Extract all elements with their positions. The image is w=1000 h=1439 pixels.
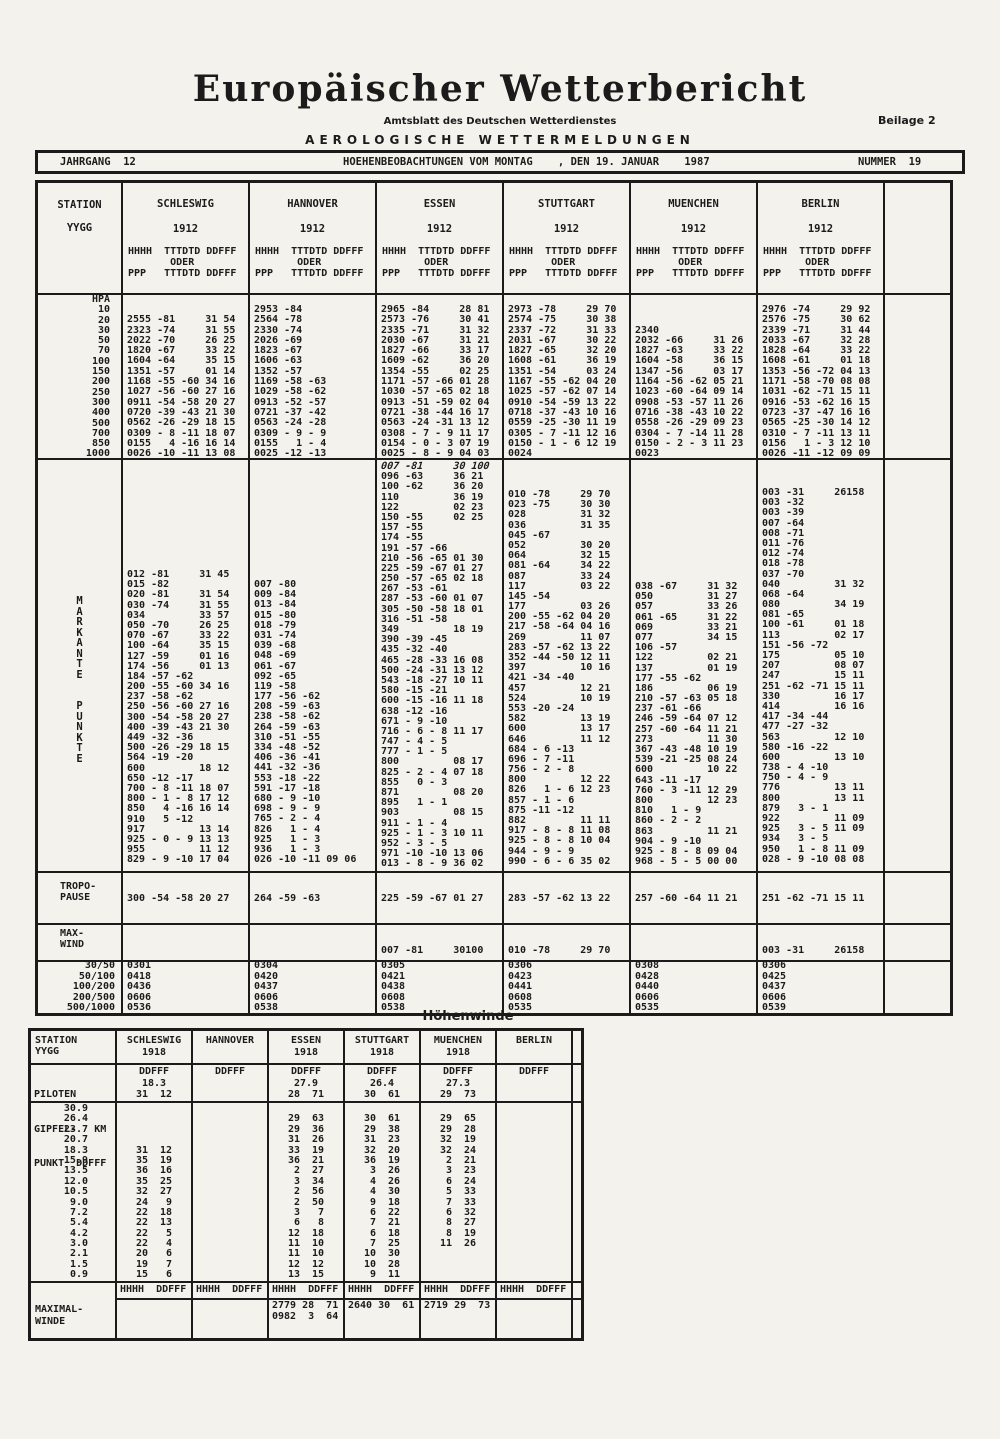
table-divider <box>31 1281 581 1283</box>
column-header-line: HHHH TTTDTD DDFFF <box>382 246 502 257</box>
document-subtitle: Amtsblatt des Deutschen Wetterdienstes <box>0 116 1000 127</box>
height-wind-line <box>193 1187 267 1197</box>
height-wind-line <box>497 1249 571 1259</box>
piloten-ddfff-label: DDFFF <box>193 1066 267 1078</box>
hw-station-yygg <box>193 1046 267 1047</box>
height-wind-line <box>193 1156 267 1166</box>
hw-station-column-hannover: HANNOVERDDFFFHHHH DDFFF <box>193 1031 269 1338</box>
hpa-data-cell: 2976 -74 29 922576 -75 30 622339 -71 31 … <box>758 293 883 458</box>
gipfel-km-value: 27.3 <box>421 1078 495 1090</box>
shear-data-line: 0305 <box>377 961 502 972</box>
height-wind-line <box>193 1249 267 1259</box>
piloten-data-cell: DDFFF27.329 73 <box>421 1063 495 1101</box>
table-divider <box>38 293 950 295</box>
height-wind-line <box>117 1104 191 1114</box>
table-divider <box>38 923 950 925</box>
height-wind-line: 4 30 <box>345 1187 419 1197</box>
markante-data-line: 600 13 17 <box>504 724 629 734</box>
hw-station-yygg: 1918 <box>345 1046 419 1058</box>
height-km-value: 0.9 <box>31 1270 88 1280</box>
markante-data-line: 026 -10 -11 09 06 <box>250 855 375 865</box>
markante-data-line: 990 - 6 - 6 35 02 <box>504 857 629 867</box>
tropopause-data-line: 257 -60 -64 11 21 <box>635 893 756 904</box>
height-wind-line <box>497 1208 571 1218</box>
maxwind-data-cell <box>123 923 248 960</box>
height-wind-line: 31 26 <box>269 1135 343 1145</box>
height-wind-line <box>193 1125 267 1135</box>
hw-station-name: BERLIN <box>497 1031 571 1046</box>
height-wind-line <box>117 1135 191 1145</box>
height-wind-line <box>497 1156 571 1166</box>
markante-letter: M <box>38 596 121 607</box>
markante-data-line: 048 -69 <box>250 651 375 661</box>
height-wind-line <box>497 1198 571 1208</box>
column-header: HHHH TTTDTD DDFFF ODERPPP TTTDTD DDFFF <box>631 235 756 279</box>
markante-data-line: 122 02 21 <box>631 653 756 663</box>
maxwind-data-line: 007 -81 30100 <box>381 945 483 956</box>
markante-data-line: 100 -64 35 15 <box>123 641 248 651</box>
station-name: SCHLESWIG <box>123 183 248 210</box>
gipfel-km-value: 26.4 <box>345 1078 419 1090</box>
maximal-wind-cell: HHHH DDFFF <box>117 1281 191 1338</box>
column-header-line: PPP TTTDTD DDFFF <box>128 268 248 279</box>
height-wind-line: 9 11 <box>345 1270 419 1280</box>
height-wind-line: 2 56 <box>269 1187 343 1197</box>
gipfel-wind-value: 28 71 <box>269 1089 343 1101</box>
piloten-data-cell: DDFFF <box>497 1063 571 1101</box>
shear-layer-label: 30/50 <box>38 961 121 972</box>
column-header-line: ODER <box>128 257 248 268</box>
shear-data-line: 0304 <box>250 961 375 972</box>
shear-data-cell: 03050421043806080538 <box>377 960 502 1013</box>
column-header-line: ODER <box>763 257 883 268</box>
shear-data-line: 0308 <box>631 961 756 972</box>
station-header-cell: ESSEN1912HHHH TTTDTD DDFFF ODERPPP TTTDT… <box>377 183 502 293</box>
height-wind-line <box>117 1114 191 1124</box>
height-wind-line <box>497 1239 571 1249</box>
column-header-line: PPP TTTDTD DDFFF <box>255 268 375 279</box>
height-wind-line <box>193 1104 267 1114</box>
shear-data-line: 0538 <box>250 1003 375 1014</box>
height-winds-cell <box>193 1101 267 1281</box>
height-wind-line <box>421 1260 495 1270</box>
gipfel-wind-value: 30 61 <box>345 1089 419 1101</box>
tropopause-label: TROPO- PAUSE <box>38 871 121 923</box>
section-heading: AEROLOGISCHE WETTERMELDUNGEN <box>0 133 1000 147</box>
main-label-column: STATION YYGG HPA102030507010015020025030… <box>38 183 123 1013</box>
maxwind-data-cell: 010 -78 29 70 <box>504 923 629 960</box>
shear-data-cell: 03040420043706060538 <box>250 960 375 1013</box>
hpa-data-cell: 23402032 -66 31 261827 -63 33 221604 -58… <box>631 293 756 458</box>
station-label: STATION <box>38 183 121 211</box>
station-yygg: 1912 <box>123 210 248 235</box>
hpa-data-cell: 2953 -842564 -782330 -742026 -691823 -67… <box>250 293 375 458</box>
markante-data-cell: 012 -81 31 45015 -82020 -81 31 54030 -74… <box>123 458 248 871</box>
hw-station-yygg: 1918 <box>269 1046 343 1058</box>
height-wind-line: 32 27 <box>117 1187 191 1197</box>
hw-station-column-stuttgart: STUTTGART1918DDFFF26.430 6130 6129 3831 … <box>345 1031 421 1338</box>
markante-data-line: 477 -27 -32 <box>758 722 883 732</box>
tropopause-data-line: 264 -59 -63 <box>254 893 375 904</box>
height-wind-line <box>497 1104 571 1114</box>
station-name: MUENCHEN <box>631 183 756 210</box>
height-wind-line <box>193 1239 267 1249</box>
height-wind-line <box>497 1260 571 1270</box>
jahrgang-label: JAHRGANG 12 <box>60 156 136 168</box>
table-divider <box>38 960 950 962</box>
supplement-label: Beilage 2 <box>878 114 936 127</box>
main-station-column-schleswig: SCHLESWIG1912HHHH TTTDTD DDFFF ODERPPP T… <box>123 183 250 1013</box>
station-name: ESSEN <box>377 183 502 210</box>
document-title: Europäischer Wetterbericht <box>0 68 1000 110</box>
column-header-line: PPP TTTDTD DDFFF <box>763 268 883 279</box>
column-header: HHHH TTTDTD DDFFF ODERPPP TTTDTD DDFFF <box>123 235 248 279</box>
markante-data-line: 174 -55 <box>377 533 502 543</box>
observation-title: HOEHENBEOBACHTUNGEN VOM MONTAG , DEN 19.… <box>343 156 710 168</box>
maximal-wind-header: HHHH DDFFF <box>269 1281 343 1295</box>
label-header-cell: STATION YYGG <box>38 183 121 293</box>
hw-station-column-muenchen: MUENCHEN1918DDFFF27.329 7329 6529 2832 1… <box>421 1031 497 1338</box>
hw-station-name: MUENCHEN <box>421 1031 495 1046</box>
markante-data-cell: 007 -81 30 100096 -63 36 21100 -62 36 20… <box>377 458 502 871</box>
height-wind-line <box>497 1229 571 1239</box>
yygg-label: YYGG <box>38 211 121 234</box>
table-divider <box>31 1063 581 1065</box>
column-header: HHHH TTTDTD DDFFF ODERPPP TTTDTD DDFFF <box>377 235 502 279</box>
station-yygg: 1912 <box>250 210 375 235</box>
markante-letter: R <box>38 617 121 628</box>
main-station-column-hannover: HANNOVER1912HHHH TTTDTD DDFFF ODERPPP TT… <box>250 183 377 1013</box>
issue-header-bar: JAHRGANG 12 HOEHENBEOBACHTUNGEN VOM MONT… <box>35 150 965 174</box>
punkte-letter: E <box>38 754 121 765</box>
hw-station-header-cell: BERLIN <box>497 1031 571 1063</box>
piloten-label-cell: PILOTEN GIPFEL- KM PUNKT DDFFF <box>31 1063 115 1101</box>
markante-letters: MARKANTEPUNKTE <box>38 462 121 764</box>
markante-data-line: 860 - 2 - 2 <box>631 816 756 826</box>
piloten-ddfff-label: DDFFF <box>345 1066 419 1078</box>
maximal-wind-cell: HHHH DDFFF2640 30 61 <box>345 1281 419 1338</box>
markante-data-line: 081 -64 34 22 <box>504 561 629 571</box>
table-divider <box>117 1298 581 1300</box>
maximal-wind-line: 2640 30 61 <box>345 1300 419 1311</box>
height-wind-line: 31 23 <box>345 1135 419 1145</box>
maximal-wind-line: 2779 28 71 <box>269 1300 343 1311</box>
hw-station-column-schleswig: SCHLESWIG1918DDFFF18.331 1231 1235 1936 … <box>117 1031 193 1338</box>
tropopause-data-cell: 283 -57 -62 13 22 <box>504 871 629 923</box>
height-wind-line <box>193 1270 267 1280</box>
maximal-wind-header: HHHH DDFFF <box>345 1281 419 1295</box>
height-wind-line: 11 26 <box>421 1239 495 1249</box>
maximal-wind-header: HHHH DDFFF <box>421 1281 495 1295</box>
main-station-column-muenchen: MUENCHEN1912HHHH TTTDTD DDFFF ODERPPP TT… <box>631 183 758 1013</box>
aerological-main-table: STATION YYGG HPA102030507010015020025030… <box>35 180 953 1016</box>
height-wind-line <box>497 1125 571 1135</box>
main-station-column-berlin: BERLIN1912HHHH TTTDTD DDFFF ODERPPP TTTD… <box>758 183 885 1013</box>
punkte-letter: P <box>38 701 121 712</box>
markante-data-line: 600 -15 -16 11 18 <box>377 696 502 706</box>
station-header-cell: HANNOVER1912HHHH TTTDTD DDFFF ODERPPP TT… <box>250 183 375 293</box>
hpa-data-cell: 2965 -84 28 812573 -76 30 412335 -71 31 … <box>377 293 502 458</box>
shear-layer-label: 500/1000 <box>38 1003 121 1014</box>
maxwind-data-cell <box>631 923 756 960</box>
station-yygg: 1912 <box>631 210 756 235</box>
hpa-data-cell: 2973 -78 29 702574 -75 30 382337 -72 31 … <box>504 293 629 458</box>
markante-punkte-label: MARKANTEPUNKTE <box>38 458 121 871</box>
hpa-data-line <box>631 305 756 315</box>
column-header: HHHH TTTDTD DDFFF ODERPPP TTTDTD DDFFF <box>758 235 883 279</box>
gipfel-wind-value: 31 12 <box>117 1089 191 1101</box>
hpa-level-list: HPA1020305070100150200250300400500700850… <box>38 293 121 458</box>
punkte-letter: N <box>38 722 121 733</box>
column-header: HHHH TTTDTD DDFFF ODERPPP TTTDTD DDFFF <box>504 235 629 279</box>
piloten-ddfff-label: DDFFF <box>497 1066 571 1078</box>
markante-data-cell: 003 -31 26158003 -32003 -39007 -64008 -7… <box>758 458 883 871</box>
column-header-line: ODER <box>636 257 756 268</box>
hw-station-name: SCHLESWIG <box>117 1031 191 1046</box>
markante-letter: T <box>38 659 121 670</box>
tropopause-data-line: 283 -57 -62 13 22 <box>508 893 629 904</box>
height-wind-line <box>193 1166 267 1176</box>
height-wind-line <box>117 1125 191 1135</box>
markante-data-line: 007 -81 30 100 <box>376 462 502 472</box>
hw-station-column-berlin: BERLINDDFFFHHHH DDFFF <box>497 1031 573 1338</box>
station-header-cell: BERLIN1912HHHH TTTDTD DDFFF ODERPPP TTTD… <box>758 183 883 293</box>
column-header-line: PPP TTTDTD DDFFF <box>382 268 502 279</box>
markante-data-cell: 038 -67 31 32050 31 27057 33 26061 -65 3… <box>631 458 756 871</box>
station-yygg: 1912 <box>377 210 502 235</box>
height-wind-line <box>193 1114 267 1124</box>
shear-data-line: 0539 <box>758 1003 883 1014</box>
height-winds-cell: 30 6129 3831 2332 2036 19 3 26 4 26 4 30… <box>345 1101 419 1281</box>
shear-layer-labels: 30/5050/100100/200200/500500/1000 <box>38 960 121 1013</box>
column-header-line: HHHH TTTDTD DDFFF <box>255 246 375 257</box>
piloten-data-cell: DDFFF27.928 71 <box>269 1063 343 1101</box>
column-header-line: HHHH TTTDTD DDFFF <box>509 246 629 257</box>
markante-letter-gap <box>38 680 121 701</box>
hw-station-header-cell: HANNOVER <box>193 1031 267 1063</box>
station-header-cell: SCHLESWIG1912HHHH TTTDTD DDFFF ODERPPP T… <box>123 183 248 293</box>
table-divider <box>38 871 950 873</box>
station-name: HANNOVER <box>250 183 375 210</box>
height-wind-line <box>193 1135 267 1145</box>
tropopause-data-line: 225 -59 -67 01 27 <box>381 893 502 904</box>
hw-station-header-cell: MUENCHEN1918 <box>421 1031 495 1063</box>
gipfel-wind-value: 29 73 <box>421 1089 495 1101</box>
piloten-ddfff-label: DDFFF <box>269 1066 343 1078</box>
main-station-column-essen: ESSEN1912HHHH TTTDTD DDFFF ODERPPP TTTDT… <box>377 183 504 1013</box>
markante-data-line: 829 - 9 -10 17 04 <box>123 855 248 865</box>
height-wind-line <box>497 1177 571 1187</box>
height-wind-line: 13 15 <box>269 1270 343 1280</box>
height-winds-cell: 29 6529 2832 1932 24 2 21 3 23 6 24 5 33… <box>421 1101 495 1281</box>
column-header-line: HHHH TTTDTD DDFFF <box>636 246 756 257</box>
markante-data-line: 013 - 8 - 9 36 02 <box>377 859 502 869</box>
maximal-wind-cell: HHHH DDFFF <box>193 1281 267 1338</box>
height-winds-cell: 29 6329 3631 2633 1936 21 2 27 3 34 2 56… <box>269 1101 343 1281</box>
piloten-ddfff-label: DDFFF <box>117 1066 191 1078</box>
column-header-line: ODER <box>509 257 629 268</box>
punkte-letter: T <box>38 743 121 754</box>
height-winds-cell <box>497 1101 571 1281</box>
height-wind-line <box>497 1187 571 1197</box>
column-header-line: HHHH TTTDTD DDFFF <box>763 246 883 257</box>
maximal-wind-line: 0982 3 64 <box>269 1311 343 1322</box>
column-header-line: HHHH TTTDTD DDFFF <box>128 246 248 257</box>
height-wind-line: 32 19 <box>421 1135 495 1145</box>
shear-data-line: 0306 <box>504 961 629 972</box>
nummer-label: NUMMER 19 <box>858 156 921 168</box>
maximal-winde-label: MAXIMAL- WINDE <box>31 1281 115 1338</box>
height-wind-line <box>193 1218 267 1228</box>
maximal-wind-cell: HHHH DDFFF2779 28 710982 3 64 <box>269 1281 343 1338</box>
height-wind-line <box>193 1198 267 1208</box>
height-wind-line <box>497 1114 571 1124</box>
main-station-column-stuttgart: STUTTGART1912HHHH TTTDTD DDFFF ODERPPP T… <box>504 183 631 1013</box>
hw-station-name: ESSEN <box>269 1031 343 1046</box>
markante-data-line: 765 - 2 - 4 <box>250 814 375 824</box>
hw-station-header-cell: SCHLESWIG1918 <box>117 1031 191 1063</box>
hw-station-name: STUTTGART <box>345 1031 419 1046</box>
maxwind-data-line: 003 -31 26158 <box>762 945 864 956</box>
height-wind-line: 5 33 <box>421 1187 495 1197</box>
shear-data-cell: 03010418043606060536 <box>123 960 248 1013</box>
gipfel-km-value: 18.3 <box>117 1078 191 1090</box>
height-wind-line <box>497 1270 571 1280</box>
tropopause-data-cell: 225 -59 -67 01 27 <box>377 871 502 923</box>
hoehenwinde-title: Höhenwinde <box>368 1009 568 1024</box>
hw-station-column-essen: ESSEN1918DDFFF27.928 7129 6329 3631 2633… <box>269 1031 345 1338</box>
height-wind-line <box>193 1177 267 1187</box>
maximal-wind-cell: HHHH DDFFF <box>497 1281 571 1338</box>
shear-data-line: 0301 <box>123 961 248 972</box>
height-wind-line <box>421 1270 495 1280</box>
maxwind-data-cell: 003 -31 26158 <box>758 923 883 960</box>
column-header-line: PPP TTTDTD DDFFF <box>509 268 629 279</box>
height-km-value: 20.7 <box>31 1135 88 1145</box>
shear-data-cell: 03080428044006060535 <box>631 960 756 1013</box>
table-divider <box>31 1101 581 1103</box>
height-wind-line <box>193 1146 267 1156</box>
markante-data-cell: 010 -78 29 70023 -75 30 30028 31 32036 3… <box>504 458 629 871</box>
station-header-cell: STUTTGART1912HHHH TTTDTD DDFFF ODERPPP T… <box>504 183 629 293</box>
markante-letter: A <box>38 638 121 649</box>
hw-station-header-cell: ESSEN1918 <box>269 1031 343 1063</box>
shear-data-cell: 03060423044106080535 <box>504 960 629 1013</box>
station-name: BERLIN <box>758 183 883 210</box>
scanned-weather-bulletin-page: { "page": { "title": "Europäischer Wette… <box>0 0 1000 1439</box>
height-wind-line: 15 6 <box>117 1270 191 1280</box>
station-yygg: 1912 <box>504 210 629 235</box>
station-yygg: 1912 <box>758 210 883 235</box>
maxwind-data-cell <box>250 923 375 960</box>
table-divider <box>38 458 950 460</box>
station-header-cell: MUENCHEN1912HHHH TTTDTD DDFFF ODERPPP TT… <box>631 183 756 293</box>
height-wind-line <box>421 1249 495 1259</box>
height-wind-line <box>497 1146 571 1156</box>
shear-data-line: 0536 <box>123 1003 248 1014</box>
hw-station-header-cell: STUTTGART1918 <box>345 1031 419 1063</box>
gipfel-km-value: 27.9 <box>269 1078 343 1090</box>
height-wind-line <box>193 1260 267 1270</box>
markante-data-line: 968 - 5 - 5 00 00 <box>631 857 756 867</box>
hoehenwinde-label-column: STATION YYGG PILOTEN GIPFEL- KM PUNKT DD… <box>31 1031 117 1338</box>
tropopause-data-cell: 300 -54 -58 20 27 <box>123 871 248 923</box>
maxwind-data-line: 010 -78 29 70 <box>508 945 610 956</box>
hw-station-label-cell: STATION YYGG <box>31 1031 115 1063</box>
maxwind-label: MAX- WIND <box>38 923 121 960</box>
column-header-line: ODER <box>255 257 375 268</box>
tropopause-data-line: 251 -62 -71 15 11 <box>762 893 883 904</box>
height-winds-cell: 31 1235 1936 1635 2532 2724 922 1822 132… <box>117 1101 191 1281</box>
height-wind-line <box>497 1218 571 1228</box>
tropopause-data-cell: 257 -60 -64 11 21 <box>631 871 756 923</box>
height-wind-line <box>497 1166 571 1176</box>
piloten-data-cell: DDFFF26.430 61 <box>345 1063 419 1101</box>
column-header-line: PPP TTTDTD DDFFF <box>636 268 756 279</box>
hw-station-yygg <box>497 1046 571 1047</box>
hw-station-name: HANNOVER <box>193 1031 267 1046</box>
maximal-wind-header: HHHH DDFFF <box>193 1281 267 1295</box>
tropopause-data-cell: 264 -59 -63 <box>250 871 375 923</box>
shear-data-line: 0306 <box>758 961 883 972</box>
height-wind-line <box>193 1208 267 1218</box>
shear-data-line: 0535 <box>631 1003 756 1014</box>
maximal-wind-header: HHHH DDFFF <box>117 1281 191 1295</box>
height-wind-line <box>497 1135 571 1145</box>
maxwind-data-cell: 007 -81 30100 <box>377 923 502 960</box>
tropopause-data-cell: 251 -62 -71 15 11 <box>758 871 883 923</box>
hw-station-yygg: 1918 <box>117 1046 191 1058</box>
maximal-wind-header: HHHH DDFFF <box>497 1281 571 1295</box>
hw-station-yygg: 1918 <box>421 1046 495 1058</box>
piloten-data-cell: DDFFF18.331 12 <box>117 1063 191 1101</box>
maximal-wind-cell: HHHH DDFFF2719 29 73 <box>421 1281 495 1338</box>
column-header-line: ODER <box>382 257 502 268</box>
shear-data-cell: 03060425043706060539 <box>758 960 883 1013</box>
maximal-wind-line: 2719 29 73 <box>421 1300 495 1311</box>
markante-letter: E <box>38 670 121 681</box>
markante-data-line: 018 -78 <box>758 559 883 569</box>
height-wind-line <box>193 1229 267 1239</box>
markante-data-line: 028 - 9 -10 08 08 <box>758 855 883 865</box>
hpa-data-cell: 2555 -81 31 542323 -74 31 552022 -70 26 … <box>123 293 248 458</box>
markante-data-line: 850 4 -16 16 14 <box>123 804 248 814</box>
station-name: STUTTGART <box>504 183 629 210</box>
hoehenwinde-table: STATION YYGG PILOTEN GIPFEL- KM PUNKT DD… <box>28 1028 584 1341</box>
tropopause-data-line: 300 -54 -58 20 27 <box>127 893 248 904</box>
markante-data-cell: 007 -80009 -84013 -84015 -80018 -79031 -… <box>250 458 375 871</box>
column-header: HHHH TTTDTD DDFFF ODERPPP TTTDTD DDFFF <box>250 235 375 279</box>
piloten-ddfff-label: DDFFF <box>421 1066 495 1078</box>
piloten-data-cell: DDFFF <box>193 1063 267 1101</box>
